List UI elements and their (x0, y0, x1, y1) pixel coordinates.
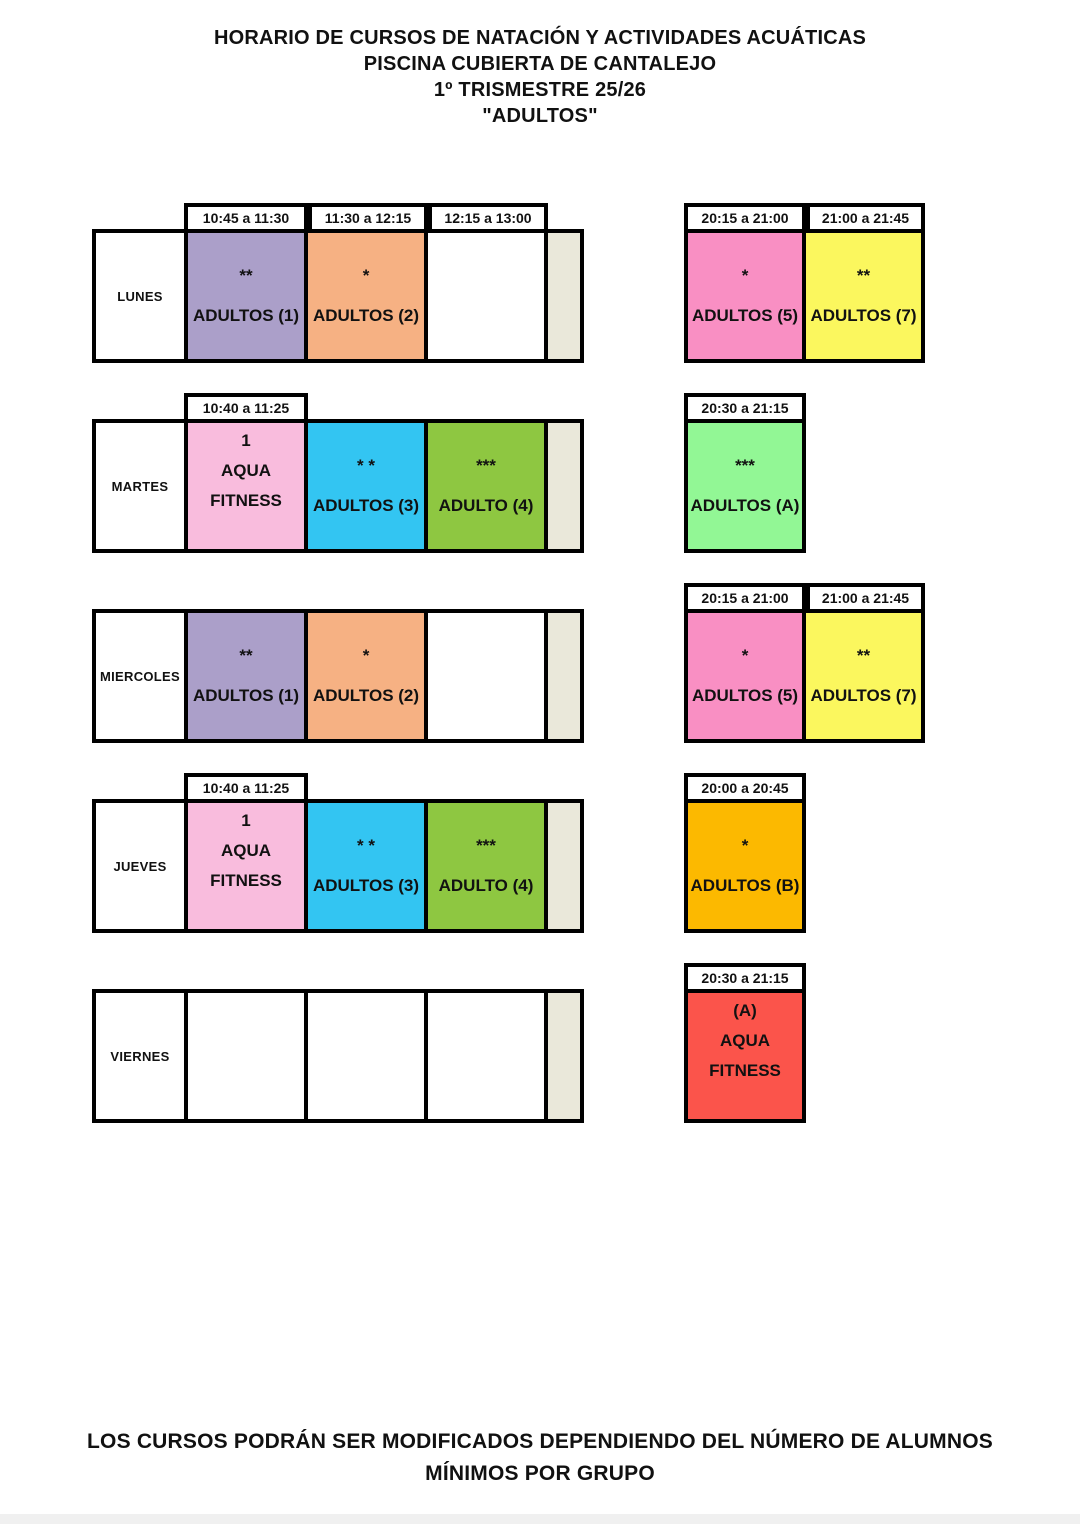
course-cell-right-viernes-1: (A)AQUAFITNESS (688, 993, 802, 1119)
time-header: 10:40 a 11:25 (184, 773, 308, 803)
cell-line: * * (357, 456, 375, 476)
cell-line: ADULTOS (7) (810, 686, 916, 706)
course-cell-left-viernes-3 (428, 993, 544, 1119)
cell-line: FITNESS (709, 1061, 781, 1081)
footer-line-1: LOS CURSOS PODRÁN SER MODIFICADOS DEPEND… (0, 1426, 1080, 1458)
cell-line: * (742, 836, 749, 856)
cell-line: ADULTOS (B) (691, 876, 800, 896)
course-cell-left-lunes-3 (428, 233, 544, 359)
cell-line: ** (239, 646, 252, 666)
cell-line: * (363, 646, 370, 666)
course-cell-right-martes-1: ***ADULTOS (A) (688, 423, 802, 549)
cell-line: AQUA (221, 841, 271, 861)
cell-line: (A) (733, 1001, 757, 1021)
title-line-4: "ADULTOS" (0, 103, 1080, 129)
schedule-row-left-martes: MARTES1AQUAFITNESS* *ADULTOS (3)***ADULT… (92, 419, 584, 553)
schedule-row-left-miercoles: MIERCOLES**ADULTOS (1)*ADULTOS (2) (92, 609, 584, 743)
time-header: 20:00 a 20:45 (684, 773, 806, 803)
cell-line: FITNESS (210, 491, 282, 511)
cell-line: * (742, 266, 749, 286)
day-label: MARTES (96, 423, 184, 549)
schedule-page: HORARIO DE CURSOS DE NATACIÓN Y ACTIVIDA… (0, 0, 1080, 1524)
spacer-column (548, 613, 580, 739)
course-cell-left-lunes-1: **ADULTOS (1) (188, 233, 304, 359)
course-cell-right-miercoles-1: *ADULTOS (5) (688, 613, 802, 739)
schedule-row-right-miercoles: *ADULTOS (5)**ADULTOS (7) (684, 609, 925, 743)
page-title: HORARIO DE CURSOS DE NATACIÓN Y ACTIVIDA… (0, 25, 1080, 129)
course-cell-right-lunes-2: **ADULTOS (7) (806, 233, 921, 359)
course-cell-left-viernes-1 (188, 993, 304, 1119)
time-header: 11:30 a 12:15 (308, 203, 428, 233)
time-header: 10:40 a 11:25 (184, 393, 308, 423)
cell-line: *** (476, 836, 496, 856)
title-line-2: PISCINA CUBIERTA DE CANTALEJO (0, 51, 1080, 77)
cell-line: ** (857, 646, 870, 666)
cell-line: ADULTOS (5) (692, 686, 798, 706)
schedule-row-right-jueves: *ADULTOS (B) (684, 799, 806, 933)
cell-line: ADULTO (4) (439, 876, 534, 896)
course-cell-right-miercoles-2: **ADULTOS (7) (806, 613, 921, 739)
footer-line-2: MÍNIMOS POR GRUPO (0, 1458, 1080, 1490)
time-header: 21:00 a 21:45 (806, 583, 925, 613)
spacer-column (548, 233, 580, 359)
spacer-column (548, 993, 580, 1119)
cell-line: ADULTO (4) (439, 496, 534, 516)
course-cell-left-martes-2: * *ADULTOS (3) (308, 423, 424, 549)
title-line-1: HORARIO DE CURSOS DE NATACIÓN Y ACTIVIDA… (0, 25, 1080, 51)
day-label: JUEVES (96, 803, 184, 929)
time-header: 21:00 a 21:45 (806, 203, 925, 233)
spacer-column (548, 803, 580, 929)
schedule-row-right-viernes: (A)AQUAFITNESS (684, 989, 806, 1123)
time-header: 20:30 a 21:15 (684, 393, 806, 423)
course-cell-left-jueves-2: * *ADULTOS (3) (308, 803, 424, 929)
footer-note: LOS CURSOS PODRÁN SER MODIFICADOS DEPEND… (0, 1426, 1080, 1490)
day-label: VIERNES (96, 993, 184, 1119)
cell-line: ADULTOS (3) (313, 876, 419, 896)
day-label: LUNES (96, 233, 184, 359)
cell-line: AQUA (720, 1031, 770, 1051)
time-header: 10:45 a 11:30 (184, 203, 308, 233)
cell-line: ** (239, 266, 252, 286)
time-header: 20:15 a 21:00 (684, 203, 806, 233)
schedule-row-left-viernes: VIERNES (92, 989, 584, 1123)
cell-line: * (363, 266, 370, 286)
cell-line: ADULTOS (1) (193, 686, 299, 706)
cell-line: FITNESS (210, 871, 282, 891)
day-label: MIERCOLES (96, 613, 184, 739)
cell-line: 1 (241, 431, 250, 451)
course-cell-left-jueves-1: 1AQUAFITNESS (188, 803, 304, 929)
cell-line: ADULTOS (5) (692, 306, 798, 326)
schedule-row-left-jueves: JUEVES1AQUAFITNESS* *ADULTOS (3)***ADULT… (92, 799, 584, 933)
time-header: 20:30 a 21:15 (684, 963, 806, 993)
cell-line: ADULTOS (2) (313, 306, 419, 326)
course-cell-left-miercoles-3 (428, 613, 544, 739)
cell-line: ADULTOS (1) (193, 306, 299, 326)
course-cell-left-lunes-2: *ADULTOS (2) (308, 233, 424, 359)
course-cell-left-martes-3: ***ADULTO (4) (428, 423, 544, 549)
time-header: 12:15 a 13:00 (428, 203, 548, 233)
cell-line: AQUA (221, 461, 271, 481)
cell-line: * * (357, 836, 375, 856)
time-header: 20:15 a 21:00 (684, 583, 806, 613)
cell-line: 1 (241, 811, 250, 831)
schedule-row-right-lunes: *ADULTOS (5)**ADULTOS (7) (684, 229, 925, 363)
schedule-row-left-lunes: LUNES**ADULTOS (1)*ADULTOS (2) (92, 229, 584, 363)
course-cell-right-lunes-1: *ADULTOS (5) (688, 233, 802, 359)
course-cell-right-jueves-1: *ADULTOS (B) (688, 803, 802, 929)
course-cell-left-jueves-3: ***ADULTO (4) (428, 803, 544, 929)
course-cell-left-viernes-2 (308, 993, 424, 1119)
spacer-column (548, 423, 580, 549)
title-line-3: 1º TRISMESTRE 25/26 (0, 77, 1080, 103)
cell-line: ADULTOS (7) (810, 306, 916, 326)
schedule-row-right-martes: ***ADULTOS (A) (684, 419, 806, 553)
cell-line: ADULTOS (3) (313, 496, 419, 516)
cell-line: * (742, 646, 749, 666)
cell-line: *** (476, 456, 496, 476)
cell-line: ADULTOS (2) (313, 686, 419, 706)
course-cell-left-miercoles-2: *ADULTOS (2) (308, 613, 424, 739)
course-cell-left-martes-1: 1AQUAFITNESS (188, 423, 304, 549)
course-cell-left-miercoles-1: **ADULTOS (1) (188, 613, 304, 739)
cell-line: *** (735, 456, 755, 476)
bottom-strip (0, 1514, 1080, 1524)
cell-line: ** (857, 266, 870, 286)
cell-line: ADULTOS (A) (691, 496, 800, 516)
